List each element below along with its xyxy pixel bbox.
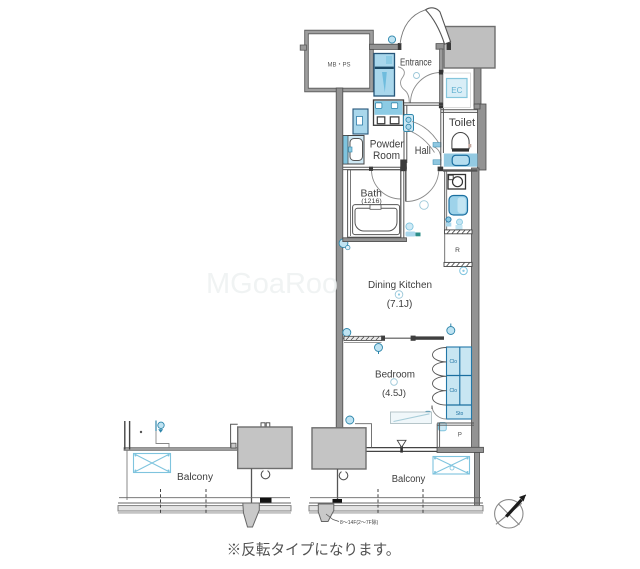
svg-text:Dining Kitchen: Dining Kitchen	[368, 280, 432, 291]
svg-text:※反転タイプになります。: ※反転タイプになります。	[227, 542, 401, 559]
svg-text:(7.1J): (7.1J)	[387, 299, 413, 310]
svg-text:8〜14F(2〜7F除): 8〜14F(2〜7F除)	[340, 519, 379, 526]
svg-text:P: P	[458, 432, 462, 439]
svg-text:Balcony: Balcony	[177, 472, 213, 483]
svg-text:EC: EC	[451, 86, 462, 95]
svg-text:Sto: Sto	[456, 411, 464, 417]
svg-text:MGoaRoo: MGoaRoo	[206, 268, 338, 300]
svg-text:Clo: Clo	[450, 359, 458, 365]
svg-text:Balcony: Balcony	[392, 474, 426, 485]
svg-text:MB・PS: MB・PS	[327, 63, 350, 69]
svg-text:Clo: Clo	[450, 388, 458, 394]
svg-text:R: R	[455, 247, 460, 254]
svg-text:Entrance: Entrance	[400, 57, 432, 68]
svg-text:Toilet: Toilet	[449, 117, 476, 129]
svg-text:(4.5J): (4.5J)	[382, 387, 406, 398]
svg-text:Powder: Powder	[370, 139, 404, 151]
svg-text:Hall: Hall	[415, 145, 431, 157]
svg-text:Room: Room	[373, 150, 400, 162]
